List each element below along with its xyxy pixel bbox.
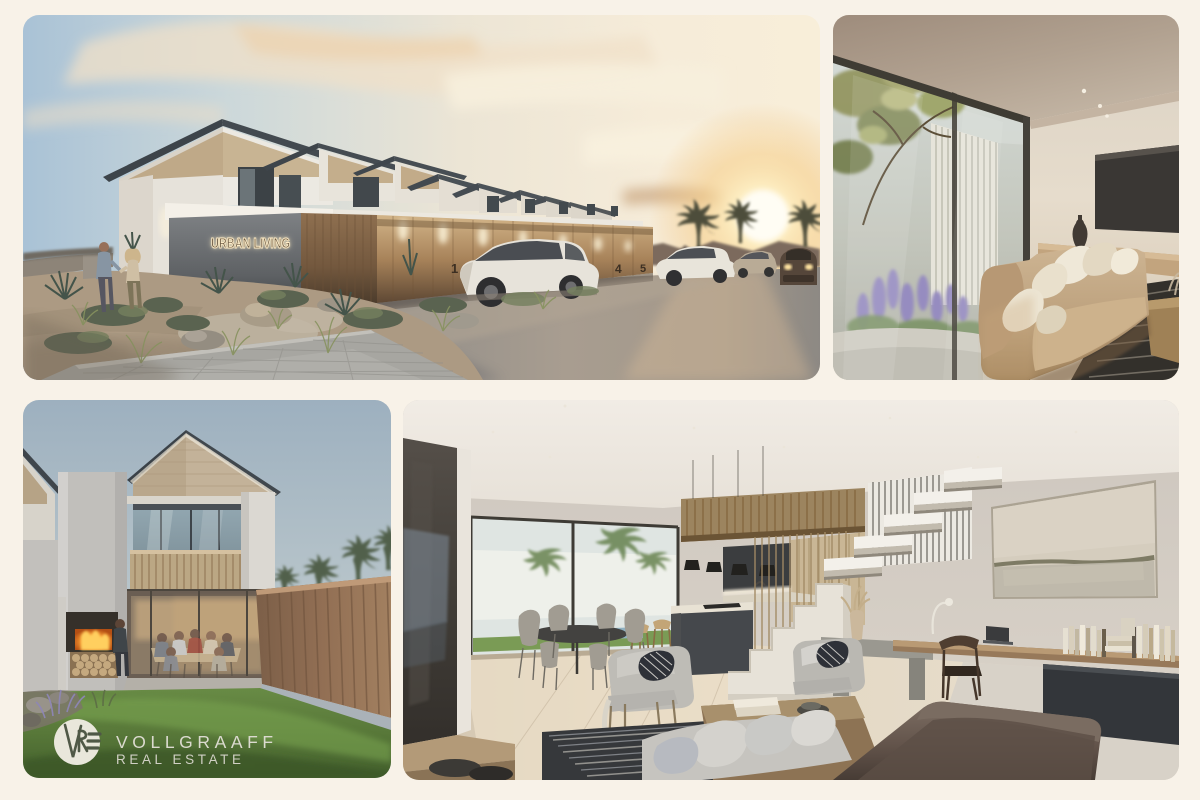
svg-text:VOLLGRAAFF: VOLLGRAAFF — [116, 732, 278, 752]
svg-text:URBAN LIVING: URBAN LIVING — [211, 235, 290, 252]
svg-text:REAL ESTATE: REAL ESTATE — [116, 752, 245, 767]
svg-text:4: 4 — [615, 262, 622, 276]
svg-text:5: 5 — [640, 263, 646, 275]
svg-text:1: 1 — [451, 261, 458, 276]
